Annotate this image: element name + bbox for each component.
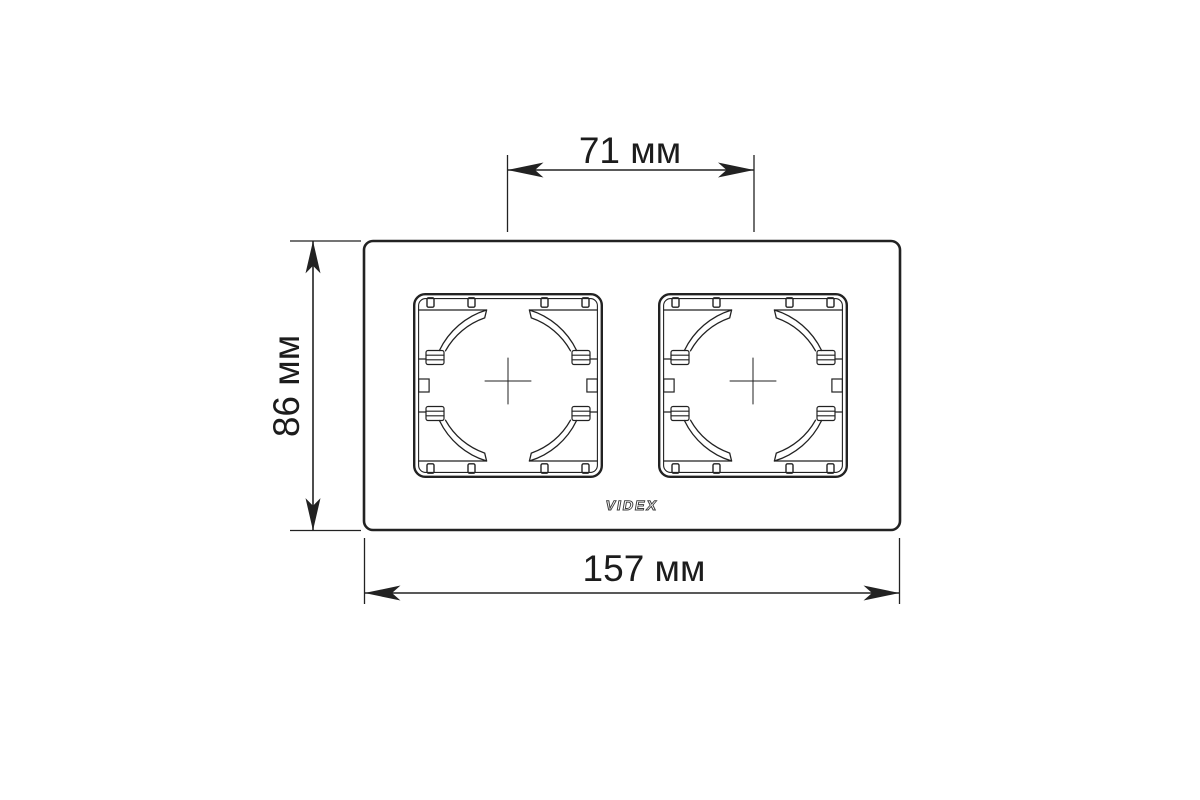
socket-module-right: [659, 294, 847, 477]
drawing-canvas: VIDEX 71 мм 86 мм 157 мм: [0, 0, 1200, 800]
dimension-top-label: 71 мм: [579, 130, 681, 171]
technical-drawing: VIDEX 71 мм 86 мм 157 мм: [0, 0, 1200, 800]
dimension-bottom-label: 157 мм: [583, 548, 706, 589]
socket-module-left: [414, 294, 602, 477]
dimension-left-label: 86 мм: [266, 335, 307, 437]
brand-logo: VIDEX: [604, 498, 659, 513]
frame-outline: [364, 241, 900, 530]
brand-logo-text: VIDEX: [604, 498, 659, 513]
